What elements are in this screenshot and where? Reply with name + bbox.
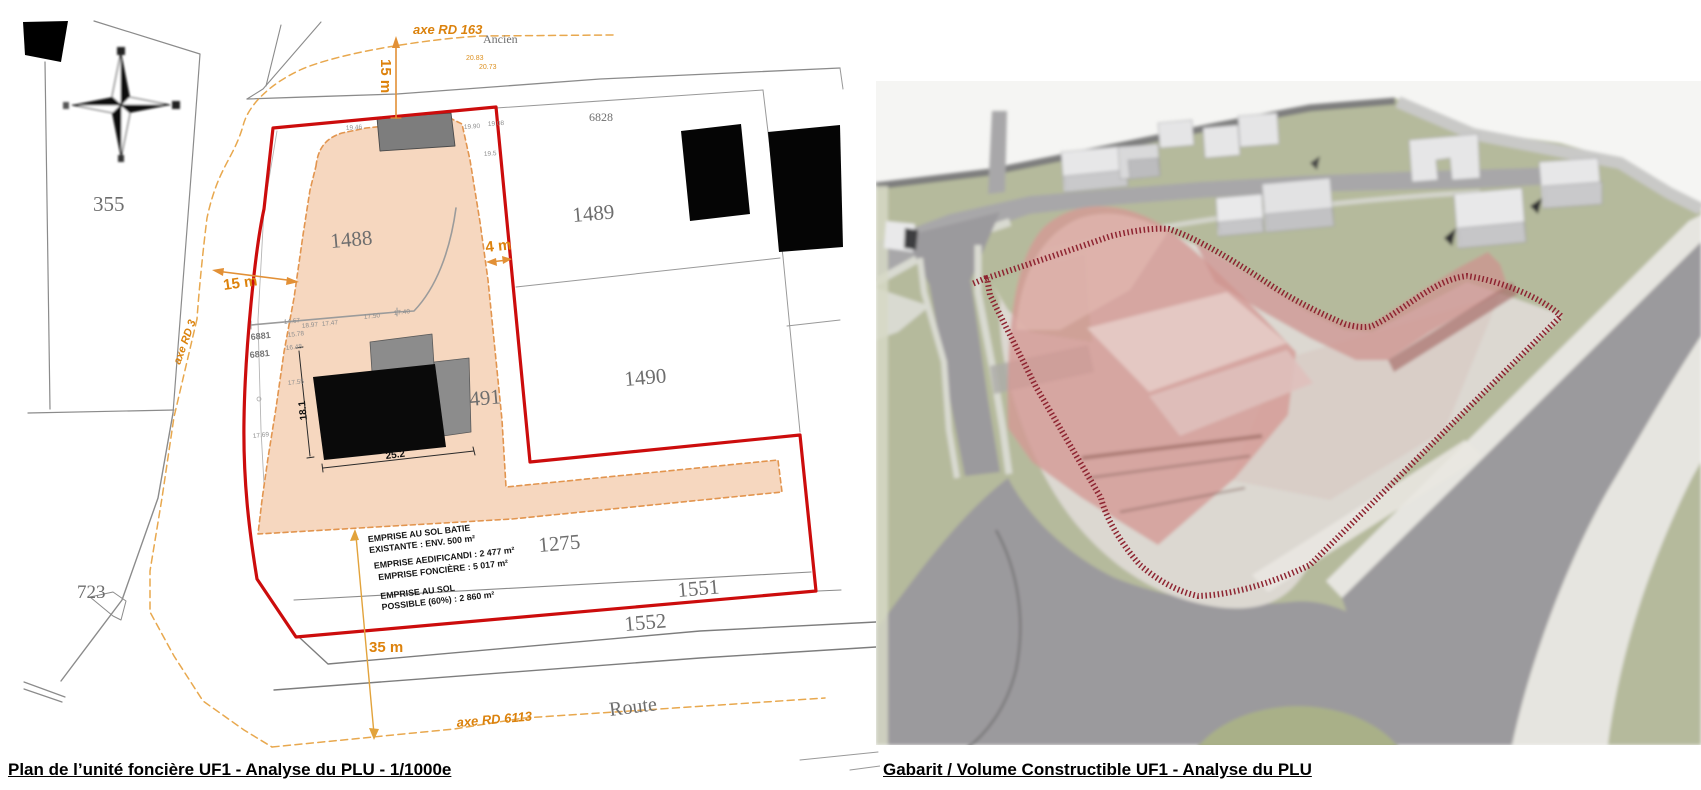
svg-text:19.08: 19.08 xyxy=(488,120,505,128)
svg-text:17.69: 17.69 xyxy=(252,431,269,440)
svg-text:6881: 6881 xyxy=(249,348,270,360)
svg-text:6881: 6881 xyxy=(250,330,271,342)
svg-text:axe RD 163: axe RD 163 xyxy=(413,22,483,37)
svg-text:20.73: 20.73 xyxy=(479,64,497,71)
svg-text:4 m: 4 m xyxy=(485,236,512,256)
svg-text:1551: 1551 xyxy=(676,574,720,602)
svg-text:1488: 1488 xyxy=(329,225,373,253)
svg-text:axe RD 3: axe RD 3 xyxy=(172,318,199,366)
svg-text:491: 491 xyxy=(468,384,501,411)
svg-text:1552: 1552 xyxy=(623,608,667,636)
svg-text:6828: 6828 xyxy=(589,110,613,124)
svg-text:19.46: 19.46 xyxy=(346,124,363,132)
svg-text:723: 723 xyxy=(77,582,106,603)
svg-text:axe RD 6113: axe RD 6113 xyxy=(456,708,533,730)
svg-text:Route: Route xyxy=(608,693,658,721)
svg-text:35 m: 35 m xyxy=(369,639,403,656)
svg-text:20.83: 20.83 xyxy=(466,55,484,62)
svg-text:19.5: 19.5 xyxy=(484,150,497,158)
svg-text:18.1: 18.1 xyxy=(297,400,310,421)
svg-text:15 m: 15 m xyxy=(377,59,394,93)
svg-text:Ancien: Ancien xyxy=(483,32,518,46)
svg-text:1490: 1490 xyxy=(623,363,667,391)
svg-text:1275: 1275 xyxy=(537,529,581,557)
svg-text:355: 355 xyxy=(93,192,125,216)
svg-text:19.90: 19.90 xyxy=(464,123,481,131)
svg-text:1489: 1489 xyxy=(571,199,615,227)
